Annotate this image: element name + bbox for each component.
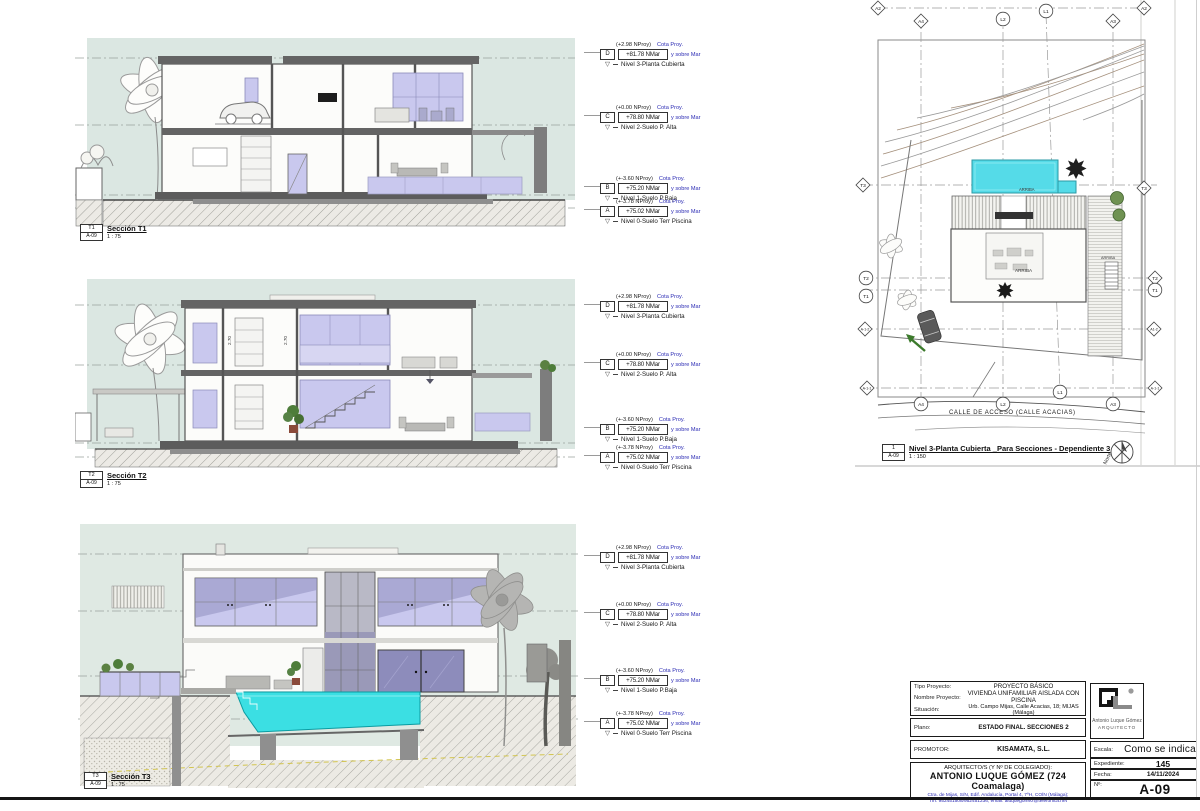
project-info-box: Tipo Proyecto:PROYECTO BÁSICO Nombre Pro… [910, 681, 1086, 716]
sliding-door [378, 650, 464, 692]
level-marker-t1-d: (+2.98 NProy)Cota Proy. D+81.78 NMary so… [600, 41, 740, 68]
sheet-right-border [1196, 0, 1197, 797]
level-triangle-icon: ▽ [605, 437, 610, 443]
level-triangle-icon: ▽ [605, 688, 610, 694]
terrain-contours [881, 44, 1144, 178]
car-plan [916, 309, 942, 344]
level-triangle-icon: ▽ [605, 219, 610, 225]
architect-logo-icon [1098, 687, 1136, 713]
level-marker-t2-d: (+2.98 NProy)Cota Proy. D+81.78 NMary so… [600, 293, 740, 320]
level-marker-t3-b: (+-3.60 NProy)Cota Proy. B+75.20 NMary s… [600, 667, 740, 694]
svg-text:T2: T2 [1152, 276, 1158, 282]
svg-text:A-1-1: A-1-1 [1151, 387, 1160, 391]
svg-text:A4: A4 [918, 402, 924, 408]
drawing-sheet: 2.70 2.70 [0, 0, 1200, 811]
sheet-bottom-border [0, 797, 1200, 800]
expediente-box: Expediente:145 [1090, 758, 1197, 769]
svg-text:L2: L2 [1000, 17, 1006, 23]
level-triangle-icon: ▽ [605, 314, 610, 320]
svg-text:A3: A3 [1110, 402, 1116, 408]
level-marker-t1-c: (+0.00 NProy)Cota Proy. C+78.80 NMary so… [600, 104, 740, 131]
pool [972, 160, 1058, 193]
svg-text:T1: T1 [863, 294, 869, 300]
svg-text:A-1-2: A-1-2 [861, 328, 870, 332]
svg-text:A4: A4 [918, 19, 924, 25]
svg-text:T2: T2 [863, 276, 869, 282]
level-triangle-icon: ▽ [605, 565, 610, 571]
svg-text:T1: T1 [1152, 288, 1158, 294]
stair-plan [1105, 262, 1118, 289]
level-triangle-icon: ▽ [605, 125, 610, 131]
svg-text:L1: L1 [1043, 9, 1049, 15]
level-marker-t2-c: (+0.00 NProy)Cota Proy. C+78.80 NMary so… [600, 351, 740, 378]
svg-text:T3: T3 [1141, 186, 1147, 192]
arriba-label: ARRIBA [1101, 256, 1116, 260]
arquitecto-box: ARQUITECTO/S (Y Nº DE COLEGIADO): ANTONI… [910, 762, 1086, 799]
arriba-label: ARRIBA [1019, 187, 1035, 192]
svg-text:A-1-1: A-1-1 [863, 387, 872, 391]
level-triangle-icon: ▽ [605, 465, 610, 471]
caption-site-plan: 1A-09 Nivel 3-Planta Cubierta _Para Secc… [882, 444, 1110, 461]
svg-text:A1-2: A1-2 [1150, 328, 1158, 332]
upper-window-right [378, 578, 490, 626]
level-triangle-icon: ▽ [605, 62, 610, 68]
center-glazing [325, 572, 375, 692]
promotor-box: PROMOTOR:KISAMATA, S.L. [910, 740, 1086, 759]
level-marker-t2-b: (+-3.60 NProy)Cota Proy. B+75.20 NMary s… [600, 416, 740, 443]
section-t1-drawing [75, 32, 575, 230]
level-marker-t1-a: (+-3.78 NProy)Cota Proy. A+75.02 NMary s… [600, 198, 740, 225]
dim-label: 2.70 [227, 336, 232, 345]
level-marker-t3-c: (+0.00 NProy)Cota Proy. C+78.80 NMary so… [600, 601, 740, 628]
plano-box: Plano:ESTADO FINAL. SECCIONES 2 [910, 718, 1086, 737]
svg-text:A3: A3 [1110, 19, 1116, 25]
caption-seccion-t2: T2A-09 Sección T21 : 75 [80, 471, 147, 488]
dim-label: 2.70 [283, 336, 288, 345]
arriba-label: ARRIBA [1015, 268, 1033, 273]
svg-text:T3: T3 [860, 183, 866, 189]
svg-text:L2: L2 [1000, 402, 1006, 408]
title-block: Tipo Proyecto:PROYECTO BÁSICO Nombre Pro… [910, 681, 1197, 799]
north-arrow-icon [1111, 441, 1133, 463]
architect-logo-box: Antonio Luque Gómez ARQUITECTO [1090, 683, 1144, 739]
level-triangle-icon: ▽ [605, 731, 610, 737]
upper-window-left [195, 578, 317, 626]
building-footprint [951, 160, 1122, 356]
level-marker-t2-a: (+-3.78 NProy)Cota Proy. A+75.02 NMary s… [600, 444, 740, 471]
section-t3-drawing [78, 520, 578, 792]
street-label: CALLE DE ACCESO (CALLE ACACIAS) [949, 410, 1076, 416]
level-triangle-icon: ▽ [605, 622, 610, 628]
level-marker-t3-d: (+2.98 NProy)Cota Proy. D+81.78 NMary so… [600, 544, 740, 571]
palm-tree [997, 282, 1014, 299]
level-marker-t3-a: (+-3.78 NProy)Cota Proy. A+75.02 NMary s… [600, 710, 740, 737]
fecha-box: Fecha:14/11/2024 [1090, 769, 1197, 780]
building-elevation [183, 544, 498, 692]
svg-text:A2: A2 [1141, 6, 1147, 12]
section-t2-drawing: 2.70 2.70 [75, 273, 575, 470]
site-plan-drawing: ARRIBA ARRIBA ARRIBA [855, 0, 1200, 470]
level-triangle-icon: ▽ [605, 372, 610, 378]
escala-box: Escala:Como se indica [1090, 741, 1197, 758]
entry-arrow [906, 334, 925, 351]
caption-seccion-t1: T1A-09 Sección T11 : 75 [80, 224, 147, 241]
svg-text:L1: L1 [1057, 390, 1063, 396]
dark-window-band [318, 93, 337, 102]
caption-seccion-t3: T3A-09 Sección T31 : 75 [84, 772, 151, 789]
garage-window [245, 78, 258, 102]
svg-text:A2: A2 [875, 6, 881, 12]
